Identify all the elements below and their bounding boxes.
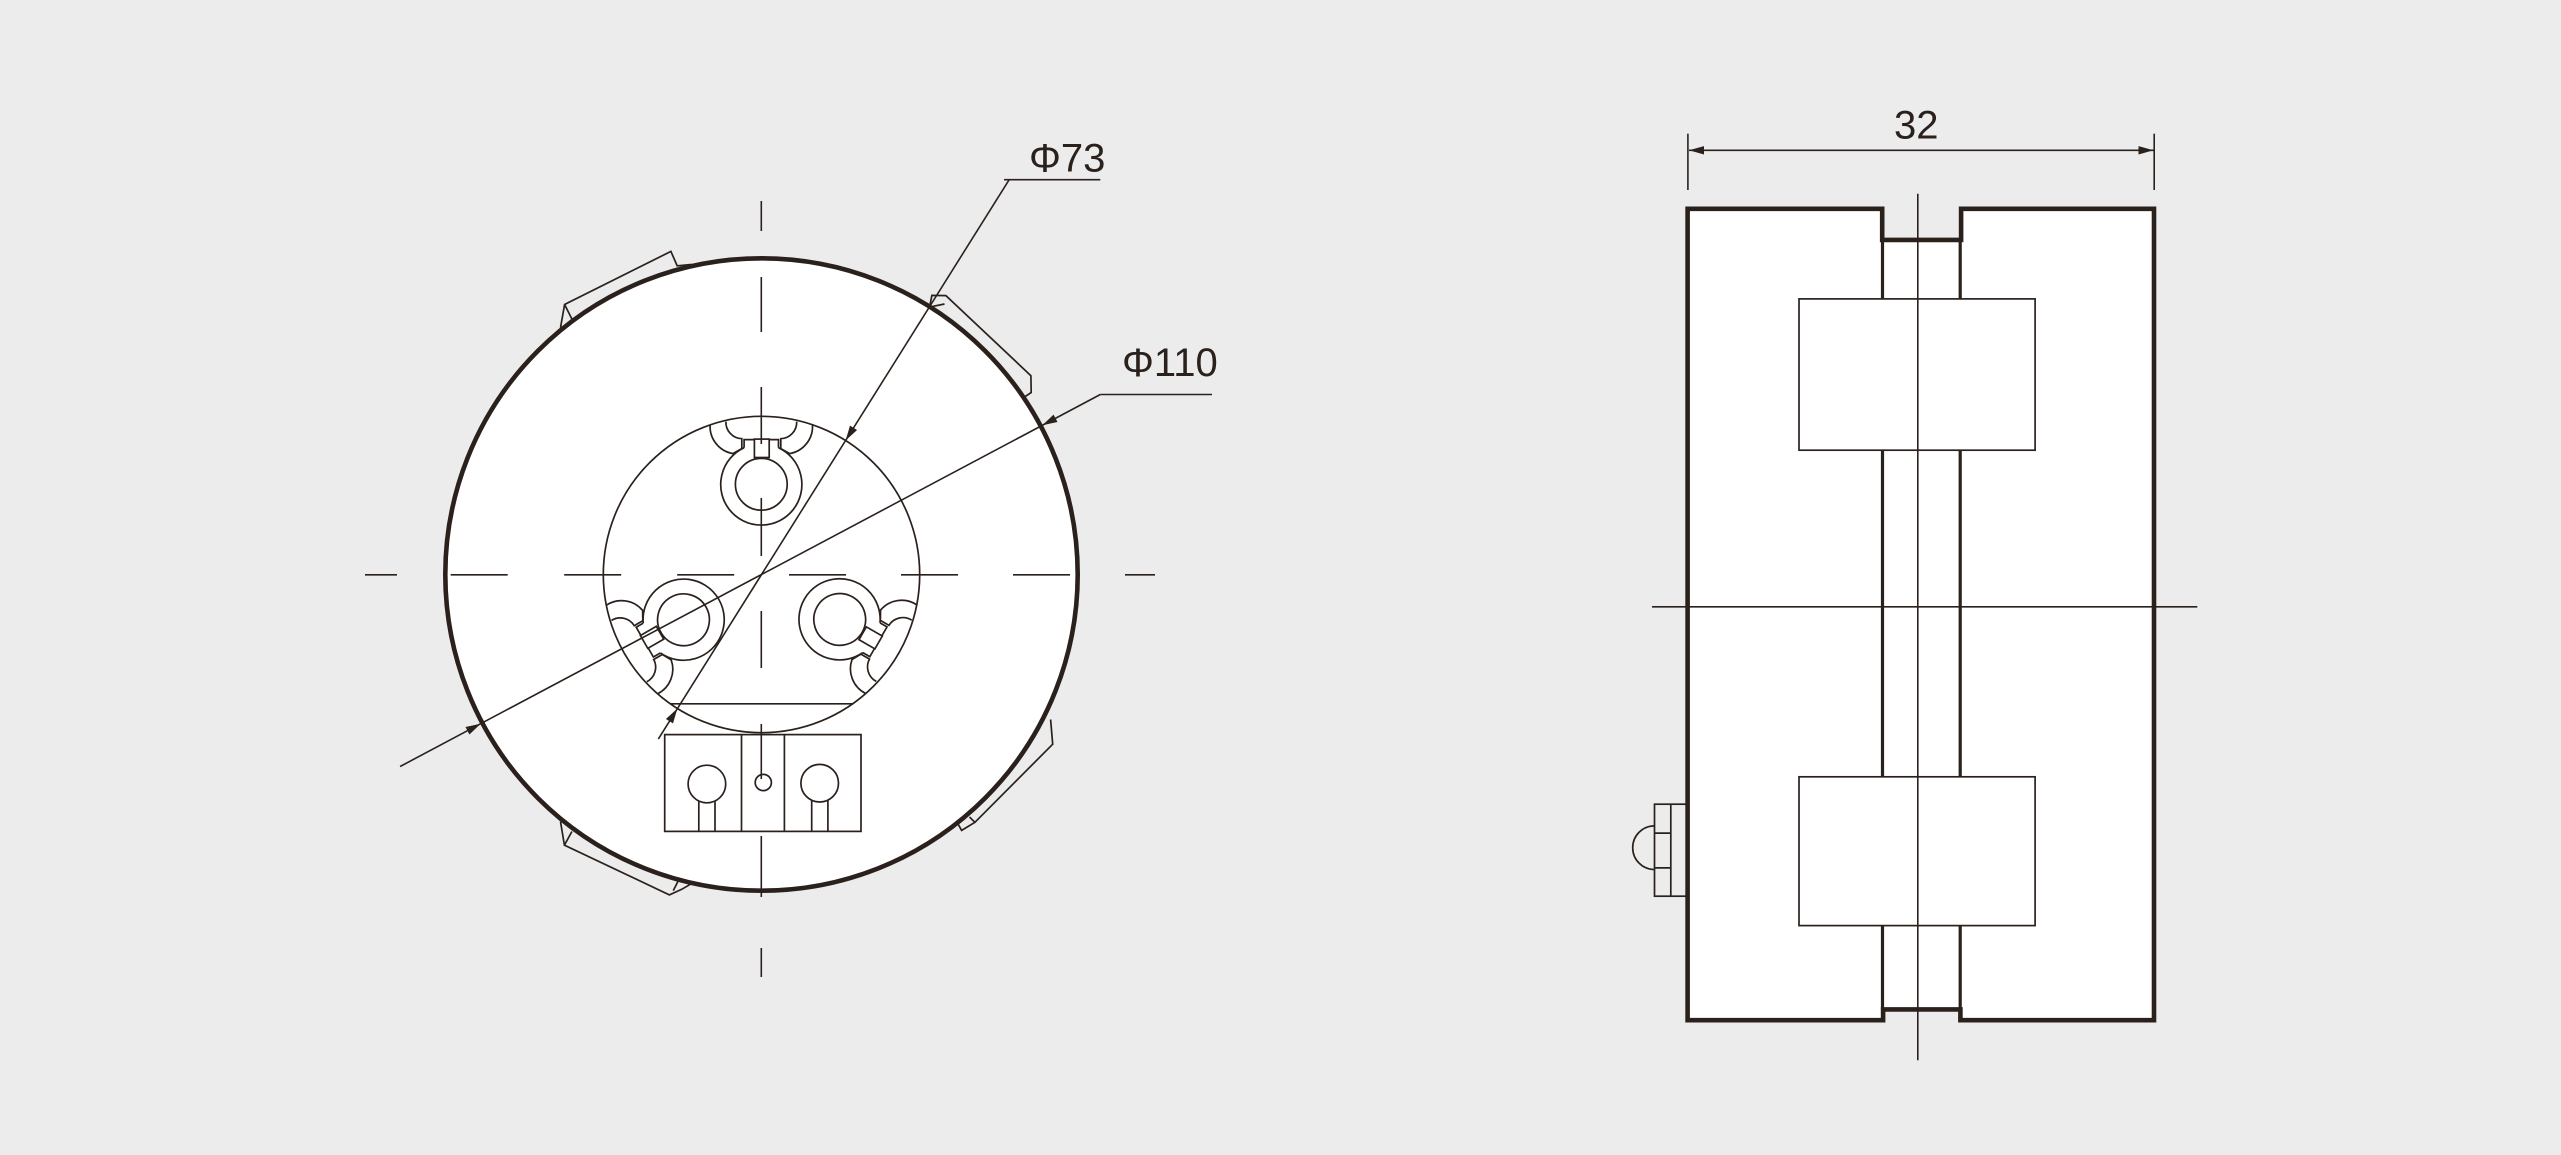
svg-text:Φ110: Φ110 (1122, 341, 1218, 385)
svg-text:32: 32 (1894, 104, 1939, 148)
svg-text:Φ73: Φ73 (1029, 137, 1105, 181)
